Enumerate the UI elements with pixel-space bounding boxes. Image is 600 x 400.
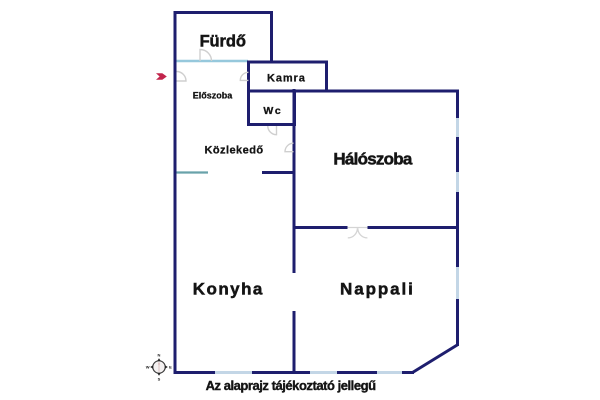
- svg-text:Nappali: Nappali: [340, 279, 415, 298]
- svg-text:Kamra: Kamra: [267, 72, 306, 84]
- svg-text:Az alaprajz tájékoztató jelleg: Az alaprajz tájékoztató jellegű: [206, 378, 376, 393]
- svg-text:N: N: [158, 353, 161, 358]
- svg-text:Közlekedő: Közlekedő: [204, 144, 263, 156]
- svg-text:W: W: [146, 365, 150, 370]
- svg-text:Wc: Wc: [263, 105, 282, 117]
- svg-text:S: S: [158, 377, 161, 382]
- svg-text:E: E: [169, 365, 172, 370]
- svg-text:Konyha: Konyha: [193, 279, 264, 298]
- svg-text:Hálószoba: Hálószoba: [333, 150, 412, 169]
- svg-text:Fürdő: Fürdő: [200, 32, 246, 50]
- svg-text:Előszoba: Előszoba: [193, 91, 234, 101]
